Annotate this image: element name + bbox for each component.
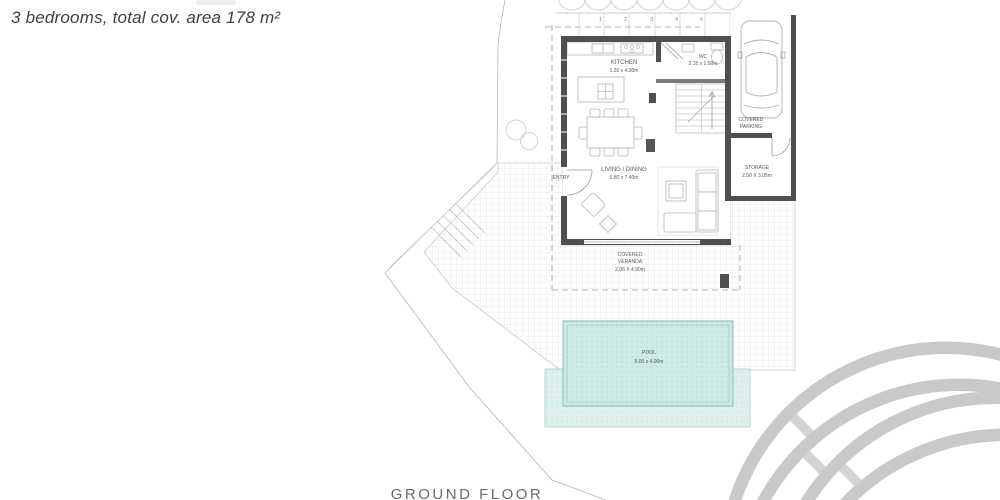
- parking-number-strip: 1 2 3 4 5: [556, 13, 731, 37]
- swimming-pool: POOL 9.00 x 4.00m: [545, 321, 750, 427]
- veranda-label-1: COVERED: [618, 252, 643, 258]
- sliding-door: [584, 240, 700, 244]
- floor-plan-drawing: 1 2 3 4 5 POOL 9.00 x 4.0: [0, 0, 1000, 500]
- storage-label: STORAGE: [745, 165, 770, 171]
- wc-label: WC: [699, 54, 708, 60]
- staircase: [676, 84, 727, 133]
- tv-unit: [646, 139, 655, 152]
- pool-label: POOL: [642, 350, 656, 356]
- kitchen-label: KITCHEN: [611, 60, 637, 66]
- veranda-label-2: VERANDA: [618, 259, 643, 265]
- veranda-dims: 2.06 X 4.90m: [615, 267, 645, 273]
- living-dims: 6.80 x 7.40m: [610, 175, 639, 181]
- kitchen-dims: 1.20 x 4.30m: [610, 68, 639, 74]
- space-number: 3: [650, 17, 653, 23]
- storage-dims: 2.50 X 3.05m: [742, 173, 772, 179]
- pool-dims: 9.00 x 4.00m: [635, 359, 664, 365]
- parking-label-1: COVERED: [739, 117, 764, 123]
- space-number: 5: [700, 17, 703, 23]
- wc-dims: 2.15 x 1.50m: [689, 61, 718, 67]
- floor-title: GROUND FLOOR: [391, 486, 544, 500]
- garden-trees: [724, 348, 1000, 500]
- floor-plan-page: 3 bedrooms, total cov. area 178 m²: [0, 0, 1000, 500]
- space-number: 2: [624, 17, 627, 23]
- parking-label-2: PARKING: [740, 124, 762, 130]
- living-label: LIVING / DINING: [601, 167, 647, 173]
- entry-label: ENTRY: [553, 175, 571, 181]
- space-number: 1: [599, 17, 602, 23]
- space-number: 4: [675, 17, 678, 23]
